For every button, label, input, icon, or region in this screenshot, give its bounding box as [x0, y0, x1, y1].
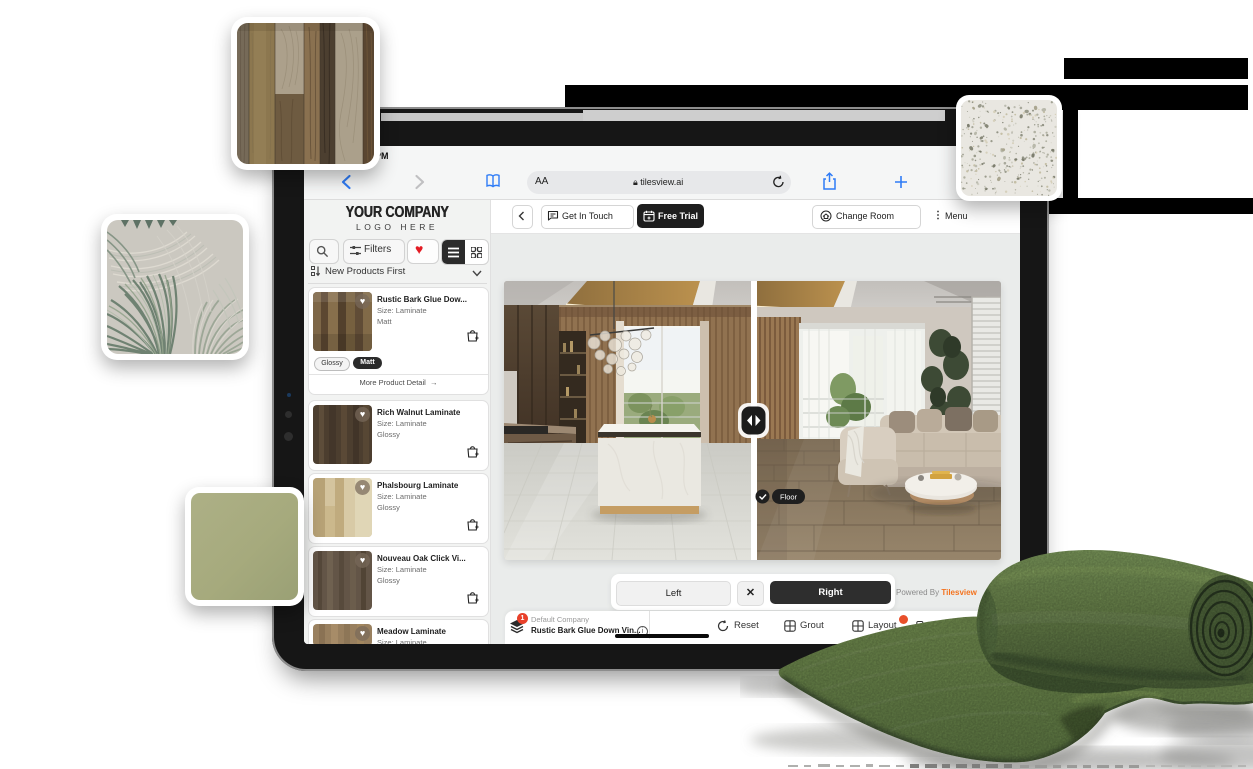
- svg-text:Floor: Floor: [780, 493, 798, 502]
